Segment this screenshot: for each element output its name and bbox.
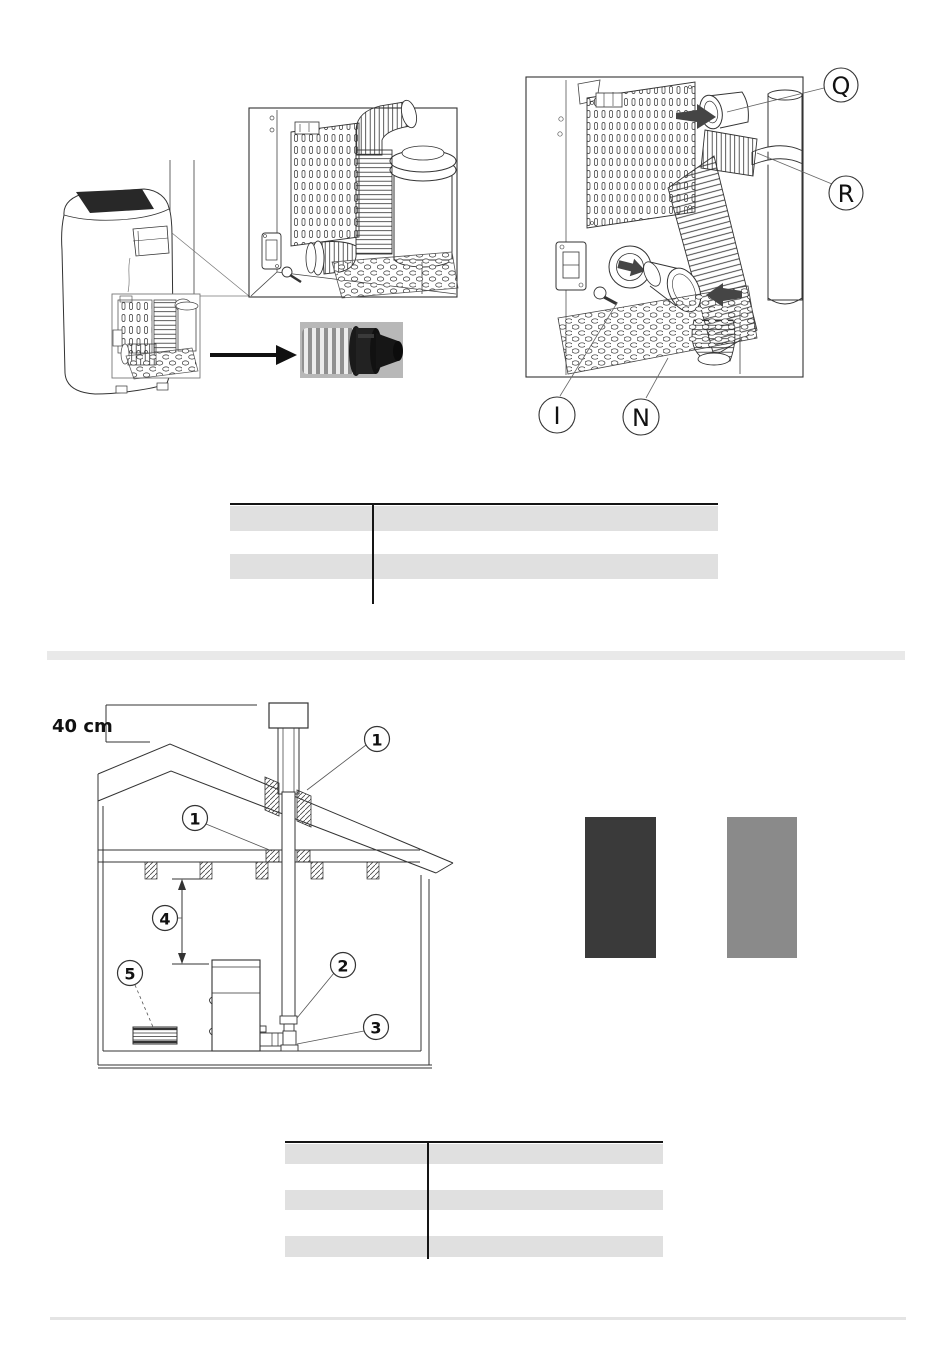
- detail-source-box: [112, 294, 200, 379]
- callout-pipe-label: 2: [337, 957, 348, 976]
- air-grille: [133, 1027, 177, 1044]
- chimney-cap: [269, 703, 308, 728]
- roof-clearance-dimension: 40 cm: [52, 705, 257, 742]
- background-pipe-lines: [170, 160, 194, 296]
- callout-distance-label: 4: [159, 910, 170, 929]
- callout-i: I: [539, 397, 575, 433]
- callout-q-label: Q: [832, 72, 851, 100]
- callout-ceiling-pass: 1: [183, 806, 208, 831]
- ceiling: [98, 850, 420, 879]
- hose-connector-photo: [300, 322, 403, 378]
- callout-n-label: N: [632, 404, 650, 432]
- footer-rule: [50, 1317, 906, 1320]
- callout-n: N: [623, 399, 659, 435]
- callout-grille-label: 5: [124, 965, 135, 984]
- callout-tee-fitting: 3: [364, 1015, 389, 1040]
- table-row: [285, 1236, 663, 1257]
- callout-r: R: [829, 176, 863, 210]
- stove-top-grille: [76, 189, 154, 213]
- chimney-pipe: [278, 728, 299, 1032]
- figure-stove-connection: [40, 55, 470, 475]
- power-switch: [262, 233, 281, 269]
- table-column-divider: [372, 505, 374, 604]
- detail-inset-box: [249, 99, 458, 298]
- perforated-panel: [291, 123, 359, 246]
- table-row: [285, 1210, 663, 1236]
- parts-table-top: [230, 503, 718, 579]
- table-row: [230, 531, 718, 554]
- figure-rear-panel-callouts: Q R I N: [510, 55, 930, 455]
- figure-house-installation: 40 cm 1 1 2 3 4 5: [30, 690, 470, 1090]
- callout-tee-label: 3: [370, 1019, 381, 1038]
- table-row: [285, 1190, 663, 1210]
- power-switch: [556, 242, 586, 290]
- table-row: [285, 1144, 663, 1164]
- manual-page: { "rear_view": { "callouts": { "q": "Q",…: [0, 0, 950, 1360]
- table-row: [285, 1164, 663, 1190]
- callout-roof-label: 1: [371, 731, 382, 750]
- swatch-gray: [727, 817, 797, 958]
- table-row: [230, 554, 718, 579]
- callout-flue-pipe: 2: [331, 953, 356, 978]
- callout-i-label: I: [553, 402, 560, 430]
- stove: [210, 960, 261, 1051]
- callout-ceiling-label: 1: [189, 810, 200, 829]
- callout-roof-pass: 1: [365, 727, 390, 752]
- section-divider-bar: [47, 651, 905, 660]
- callout-min-distance: 4: [153, 906, 178, 931]
- table-row: [230, 506, 718, 531]
- swatch-dark: [585, 817, 656, 958]
- callout-air-grille: 5: [118, 961, 143, 986]
- ceiling-joists: [145, 862, 379, 879]
- parts-table-bottom: [285, 1141, 663, 1257]
- table-column-divider: [427, 1143, 429, 1259]
- callout-r-label: R: [838, 180, 855, 208]
- callout-q: Q: [824, 68, 858, 102]
- pointer-arrow: [210, 345, 297, 365]
- dimension-label: 40 cm: [52, 716, 113, 737]
- zoom-cone-lines: [172, 233, 249, 296]
